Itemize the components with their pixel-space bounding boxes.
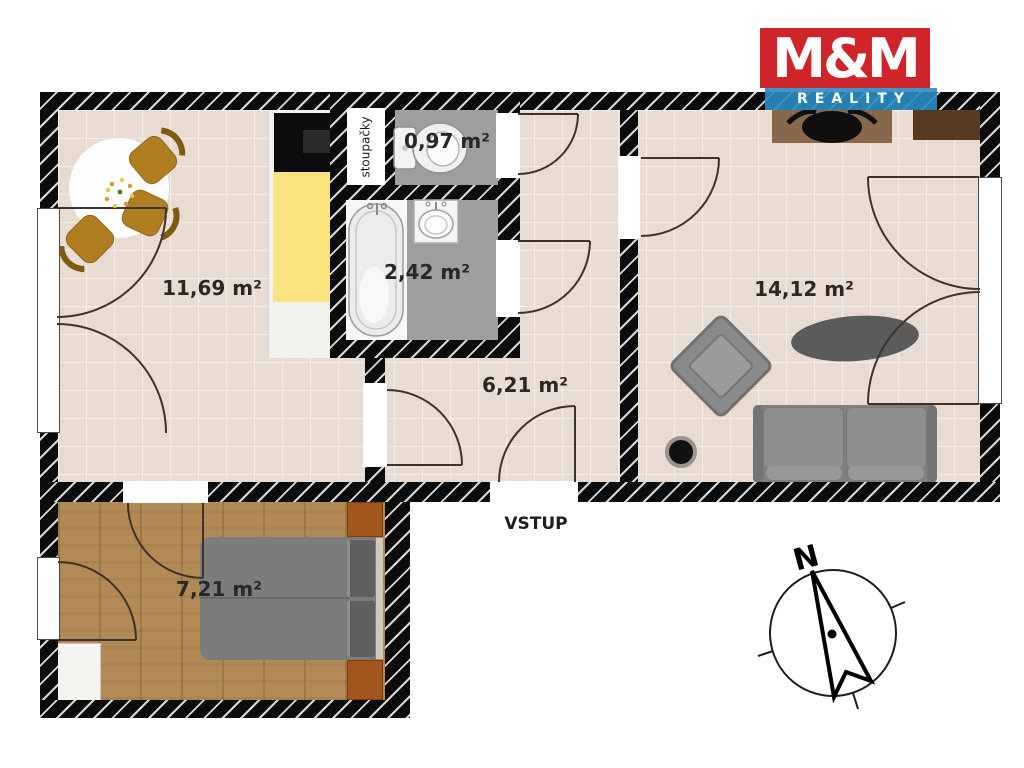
- sofa-seat-pad: [848, 466, 924, 480]
- desk: [772, 110, 892, 143]
- wall-bedroom-right: [385, 502, 410, 718]
- riser-shaft-box: stoupačky: [347, 108, 385, 185]
- door-opening-bedroom: [123, 481, 208, 503]
- room-label-bedroom: 7,21 m²: [176, 577, 262, 601]
- sofa-armrest: [753, 405, 763, 483]
- entrance-label: VSTUP: [504, 514, 567, 534]
- brand-logo: M&M: [760, 28, 930, 88]
- stove-burner: [303, 130, 333, 153]
- bed-pillow: [347, 540, 375, 597]
- armchair-cushion: [687, 332, 755, 400]
- brand-logo-banner-text: REALITY: [791, 91, 911, 107]
- compass-north-label: N: [789, 538, 822, 578]
- wardrobe: [57, 643, 101, 701]
- nightstand: [347, 660, 383, 700]
- nightstand: [347, 502, 383, 537]
- dresser: [913, 110, 980, 140]
- brand-logo-text: M&M: [772, 27, 918, 90]
- riser-shaft-label: stoupačky: [359, 116, 373, 177]
- sofa-cushion: [846, 407, 927, 469]
- plant-pot: [665, 436, 697, 468]
- door-opening-entrance: [490, 481, 578, 503]
- brand-logo-banner: REALITY: [765, 88, 937, 110]
- door-opening-kitchen-hall: [363, 383, 387, 467]
- north-arrow: [812, 571, 871, 697]
- stove-cooktop: [274, 113, 336, 172]
- sofa-cushion: [763, 407, 844, 469]
- floor-plan-canvas: stoupačky: [0, 0, 1024, 768]
- compass-north-icon: N: [758, 538, 905, 709]
- sofa-seat-pad: [766, 466, 842, 480]
- room-label-kitchen-living: 11,69 m²: [162, 276, 262, 300]
- window-living: [978, 177, 1002, 404]
- window-bedroom: [37, 557, 60, 640]
- bed-headboard: [376, 538, 383, 659]
- room-label-living-room: 14,12 m²: [754, 277, 854, 301]
- door-opening-living: [618, 156, 640, 239]
- room-label-hallway: 6,21 m²: [482, 373, 568, 397]
- door-opening-bathroom: [496, 240, 520, 317]
- kitchen-counter-yellow-worktop: [273, 172, 337, 302]
- room-label-bathroom: 2,42 m²: [384, 260, 470, 284]
- window-kitchen: [37, 208, 60, 433]
- sofa: [753, 405, 937, 483]
- bed-pillow: [347, 601, 375, 657]
- door-opening-wc: [496, 113, 520, 178]
- sofa-armrest: [927, 405, 937, 483]
- wall-bedroom-bottom: [40, 700, 410, 718]
- room-label-wc: 0,97 m²: [404, 129, 490, 153]
